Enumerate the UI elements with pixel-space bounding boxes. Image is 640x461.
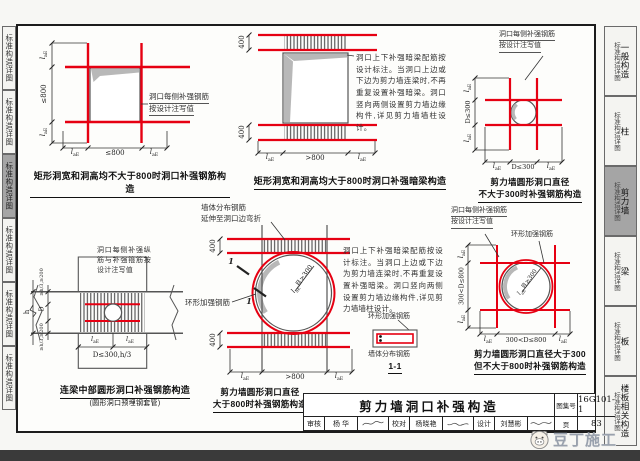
rebar-dot xyxy=(379,335,382,338)
tab-sublabel: 标准构造详图 xyxy=(612,322,619,361)
diagram-caption: 矩形洞宽和洞高均大于800时洞口补强暗梁构造 xyxy=(235,174,465,190)
pig-logo-icon xyxy=(528,429,551,450)
dim-lae: laE xyxy=(126,335,134,345)
dim-d300: D≤300 xyxy=(464,100,472,123)
tab-sublabel: 标准构造详图 xyxy=(612,182,619,221)
proofreader-name: 杨晓艳 xyxy=(410,417,443,430)
right-tab-general[interactable]: 标准构造详图一般构造 xyxy=(604,26,637,96)
left-tab-label: 标准构造详图 xyxy=(5,354,13,402)
wall-section-outline xyxy=(373,330,417,347)
tab-sublabel: 标准构造详图 xyxy=(612,42,619,81)
diagram-rect-opening-small: laE ≤800 laE laE ≤800 laE 洞口每侧补强钢筋 按设计注写… xyxy=(30,30,230,190)
dim-lae: laE xyxy=(39,51,49,60)
ring-rebar-label: 环形加强钢筋 xyxy=(185,298,230,309)
right-tab-column[interactable]: 标准构造详图柱 xyxy=(604,96,637,166)
atlas-row: 图集号 16G101-1 xyxy=(555,394,615,416)
design-note: 洞口上下补强暗梁配筋按设计标注。当洞口上边或下边为剪力墙连梁时,不再重复设置补强… xyxy=(356,52,446,133)
tab-category: 梁 xyxy=(621,267,630,276)
ring-rebar-label: 环形加强钢筋 xyxy=(511,230,553,240)
section-detail-1-1 xyxy=(373,330,417,347)
dim-400: 400 xyxy=(238,35,246,48)
left-tab-label: 标准构造详图 xyxy=(5,290,13,338)
designer-name: 刘慧彬 xyxy=(495,417,528,430)
stirrup-hatch-bottom xyxy=(263,334,326,346)
dim-lae: laE xyxy=(91,335,99,345)
tab-sublabel: 标准构造详图 xyxy=(612,112,619,151)
dim-gt800: >800 xyxy=(285,373,304,381)
dim-lae: laE xyxy=(484,335,493,345)
left-tab-6[interactable]: 标准构造详图 xyxy=(2,346,16,410)
left-tab-1[interactable]: 标准构造详图 xyxy=(2,26,16,90)
dim-le800: ≤800 xyxy=(40,84,48,103)
leader-note: 洞口每侧补强钢筋 按设计注写值 xyxy=(451,206,507,229)
left-tab-label: 标准构造详图 xyxy=(5,162,13,210)
dim-300-800: 300<D≤800 xyxy=(506,336,547,344)
left-tab-5[interactable]: 标准构造详图 xyxy=(2,282,16,346)
tab-category: 剪力墙 xyxy=(621,188,630,215)
dim-lae: laE xyxy=(493,162,502,172)
tab-sublabel: 标准构造详图 xyxy=(612,252,619,291)
dim-lae: laE xyxy=(150,148,159,158)
proofreader-signature xyxy=(443,417,474,430)
leader-note: 洞口每侧补强纵筋与补强箍筋按设计注写值 xyxy=(97,246,151,276)
dim-lae: laE xyxy=(463,84,473,93)
dim-d300-h3: D≤300,h/3 xyxy=(93,351,131,359)
dim-400: 400 xyxy=(238,125,246,138)
right-tab-slab[interactable]: 标准构造详图板 xyxy=(604,306,637,376)
designer-label: 设计 xyxy=(474,417,495,430)
dim-h: h xyxy=(23,310,31,315)
dim-400: 400 xyxy=(209,333,217,346)
proofreader-label: 校对 xyxy=(389,417,410,430)
title-block: 剪力墙洞口补强构造 审核 杨 华 校对 杨晓艳 设计 刘慧彬 图集号 16G10… xyxy=(303,393,596,431)
atlas-page: { "colors": {"red": "#e60012", "tab_acti… xyxy=(0,0,640,461)
left-tab-2[interactable]: 标准构造详图 xyxy=(2,90,16,154)
diagram-caption: 剪力墙圆形洞口直径大于300但不大于800时补强钢筋构造 xyxy=(455,348,605,375)
watermark: 豆丁施工 xyxy=(528,429,617,450)
rebar-dot xyxy=(379,339,382,342)
diagram-circle-opening-medium: 洞口每侧补强钢筋 按设计注写值 环形加强钢筋 laE 300<D≤800 laE… xyxy=(455,200,605,415)
section-title: 1-1 xyxy=(371,361,419,374)
left-tab-label: 标准构造详图 xyxy=(5,34,13,82)
dim-lae: laE xyxy=(241,372,250,382)
dim-d300: D≤300 xyxy=(511,163,534,171)
right-tab-shearwall-active[interactable]: 标准构造详图剪力墙 xyxy=(604,166,637,236)
section-ring-label: 环形加强钢筋 xyxy=(368,312,410,322)
dim-lae: laE xyxy=(71,148,80,158)
diagram-rect-opening-large: 400 400 laE >800 laE 洞口上下补强暗梁配筋按设计标注。当洞口… xyxy=(235,25,465,200)
dim-400: 400 xyxy=(209,239,217,252)
dim-lae: laE xyxy=(559,335,568,345)
stirrup-hatch-top xyxy=(263,240,326,252)
dim-lae: laE xyxy=(463,134,473,143)
reviewer-label: 审核 xyxy=(304,417,325,430)
reviewer-signature xyxy=(358,417,389,430)
bottom-bar xyxy=(0,450,640,461)
dim-lae: laE xyxy=(457,315,467,324)
dim-d: D xyxy=(39,307,46,312)
approval-row: 审核 杨 华 校对 杨晓艳 设计 刘慧彬 xyxy=(304,416,554,430)
section-mark-1: 1 xyxy=(228,256,234,266)
dim-h3-200: ≥h/3,≥200 xyxy=(39,323,45,351)
section-dist-label: 墙体分布钢筋 xyxy=(368,350,410,360)
wall-distribution-note: 墙体分布钢筋延伸至洞口边弯折 xyxy=(201,203,261,224)
design-note: 洞口上下补强暗梁配筋按设计标注。当洞口上边或下边为剪力墙连梁时,不再重复设置补强… xyxy=(343,245,443,315)
diagram-circle-opening-small: 洞口每侧补强钢筋 按设计注写值 laE D≤300 laE laE D≤300 … xyxy=(465,30,595,200)
left-tab-label: 标准构造详图 xyxy=(5,226,13,274)
watermark-text: 豆丁施工 xyxy=(553,429,617,450)
dim-300-800: 300<D≤800 xyxy=(459,267,466,305)
dim-lae: laE xyxy=(266,153,275,163)
section-mark-1: 1 xyxy=(246,296,252,306)
left-tab-3-active[interactable]: 标准构造详图 xyxy=(2,154,16,218)
dim-gt800: >800 xyxy=(305,154,324,162)
right-tab-beam[interactable]: 标准构造详图梁 xyxy=(604,236,637,306)
dim-lae: laE xyxy=(39,128,49,137)
diagram-circle-opening-small-drawing xyxy=(465,30,595,200)
sheet-title: 剪力墙洞口补强构造 xyxy=(304,394,554,416)
tab-category: 板 xyxy=(621,337,630,346)
stirrup-hatch-bottom xyxy=(284,126,347,139)
left-tab-4[interactable]: 标准构造详图 xyxy=(2,218,16,282)
dim-lae: laE xyxy=(358,153,367,163)
diagram-circle-opening-large: 墙体分布钢筋延伸至洞口边弯折 400 400 环形加强钢筋 laE且≥300 1… xyxy=(185,200,475,415)
stirrup-hatch-top xyxy=(284,36,347,49)
tab-category: 楼板相关构造 xyxy=(621,384,630,438)
atlas-label: 图集号 xyxy=(555,394,578,416)
leader-note: 洞口每侧补强钢筋 按设计注写值 xyxy=(499,30,555,53)
page-row: 页 83 xyxy=(555,416,615,430)
sleeve-circle xyxy=(104,304,121,321)
reviewer-name: 杨 华 xyxy=(325,417,358,430)
opening-circle xyxy=(511,100,536,125)
diagram-caption: 矩形洞宽和洞高均不大于800时洞口补强钢筋构造 xyxy=(30,169,230,198)
dim-lae: laE xyxy=(457,250,467,259)
left-tab-label: 标准构造详图 xyxy=(5,98,13,146)
tab-category: 柱 xyxy=(621,127,630,136)
diagram-caption: 剪力墙圆形洞口直径不大于300时补强钢筋构造 xyxy=(465,176,595,203)
dim-lae: laE xyxy=(335,372,344,382)
dim-lae: laE xyxy=(547,162,556,172)
dim-h3-200: ≥h/3,≥200 xyxy=(39,268,45,296)
dim-le800: ≤800 xyxy=(105,149,124,157)
leader-note: 洞口每侧补强钢筋 按设计注写值 xyxy=(149,92,209,116)
atlas-number: 16G101-1 xyxy=(578,394,615,416)
tab-category: 一般构造 xyxy=(621,43,630,79)
